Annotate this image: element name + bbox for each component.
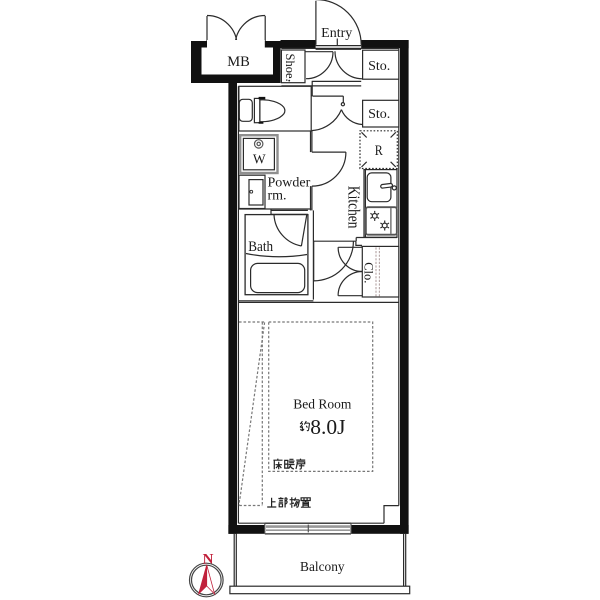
svg-text:Bed Room: Bed Room xyxy=(293,397,352,412)
svg-text:Kitchen: Kitchen xyxy=(345,186,364,229)
svg-text:Balcony: Balcony xyxy=(300,560,345,575)
svg-text:Clo.: Clo. xyxy=(361,262,375,283)
svg-text:rm.: rm. xyxy=(268,189,287,204)
svg-text:Bath: Bath xyxy=(248,239,273,255)
svg-text:W: W xyxy=(253,152,266,167)
svg-text:R: R xyxy=(375,143,383,159)
svg-text:Sto.: Sto. xyxy=(368,59,390,74)
svg-text:Entry: Entry xyxy=(321,26,352,41)
svg-text:MB: MB xyxy=(227,54,250,70)
svg-text:Shoe.: Shoe. xyxy=(283,54,297,82)
svg-text:N: N xyxy=(203,552,214,568)
svg-text:Sto.: Sto. xyxy=(368,107,390,122)
svg-text:8.0J: 8.0J xyxy=(310,415,345,439)
